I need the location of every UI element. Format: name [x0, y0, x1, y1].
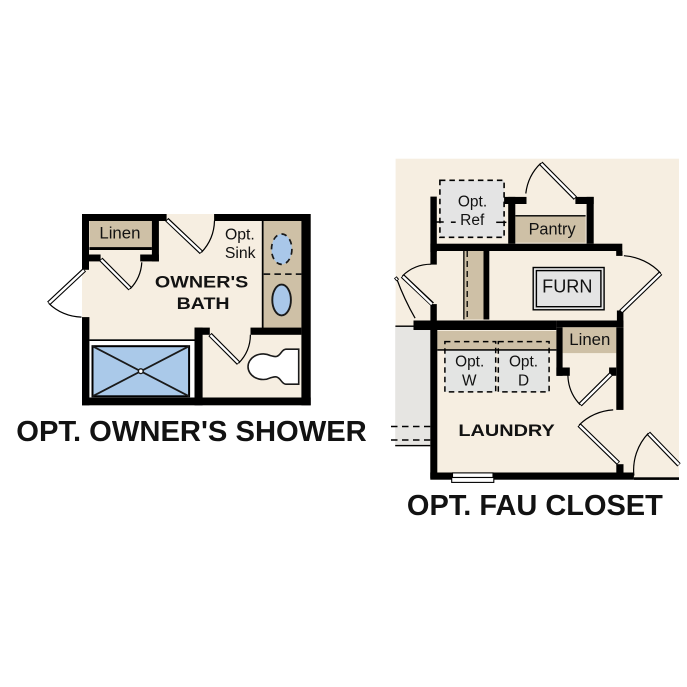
svg-text:OWNER'S: OWNER'S [155, 273, 248, 291]
svg-text:Ref: Ref [460, 212, 485, 229]
svg-text:LAUNDRY: LAUNDRY [458, 421, 555, 440]
svg-text:OPT. OWNER'S SHOWER: OPT. OWNER'S SHOWER [16, 416, 367, 448]
svg-text:Opt.: Opt. [458, 193, 487, 210]
svg-text:Opt.: Opt. [455, 354, 484, 371]
svg-text:Linen: Linen [569, 330, 610, 349]
svg-text:BATH: BATH [177, 295, 230, 313]
svg-text:Opt.: Opt. [225, 227, 255, 244]
svg-text:OPT. FAU CLOSET: OPT. FAU CLOSET [407, 490, 663, 522]
svg-text:Sink: Sink [225, 245, 256, 262]
svg-text:D: D [518, 372, 529, 389]
svg-text:Opt.: Opt. [509, 354, 538, 371]
svg-text:FURN: FURN [542, 277, 592, 297]
svg-text:W: W [462, 372, 477, 389]
svg-text:Linen: Linen [99, 224, 140, 243]
svg-text:Pantry: Pantry [529, 221, 577, 239]
